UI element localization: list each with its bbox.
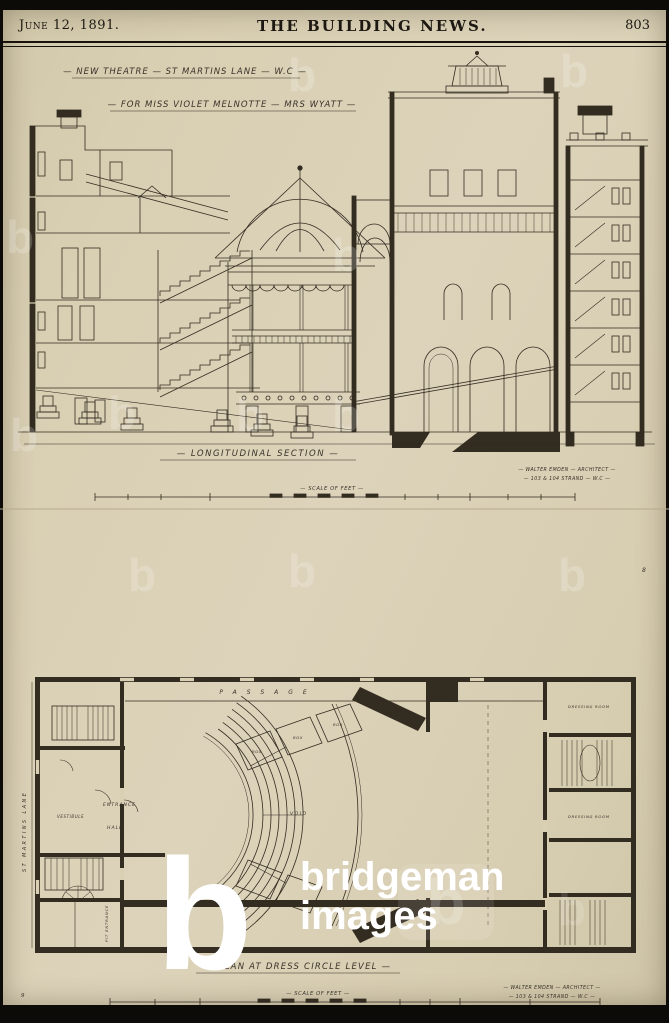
scan-edge-bottom [0,1005,669,1023]
faint-watermark-b: b [288,548,316,594]
faint-watermark-b: b [10,412,38,458]
faint-watermark-b: b [108,390,136,436]
page-number: 803 [625,18,650,33]
scan-edge-top [0,0,669,10]
bridgeman-word-line1: bridgeman [300,858,504,897]
bridgeman-wordmark: bridgeman images [300,858,504,936]
faint-watermark-b: b [558,552,586,598]
faint-watermark-b: b [236,392,264,438]
faint-watermark-b: b [332,392,360,438]
faint-watermark-b: b [558,886,586,932]
bridgeman-word-line2: images [300,897,504,936]
faint-watermark-b: b [6,214,34,260]
bridgeman-b-logo: b [156,836,253,994]
faint-watermark-b: b [288,52,316,98]
journal-title: THE BUILDING NEWS. [257,17,488,35]
journal-header: June 12, 1891. THE BUILDING NEWS. 803 [3,10,666,41]
faint-watermark-b: b [332,232,360,278]
issue-date: June 12, 1891. [19,18,119,33]
faint-watermark-b: b [560,48,588,94]
scanned-page: June 12, 1891. THE BUILDING NEWS. 803 — … [0,0,669,1023]
faint-watermark-b: b [128,552,156,598]
